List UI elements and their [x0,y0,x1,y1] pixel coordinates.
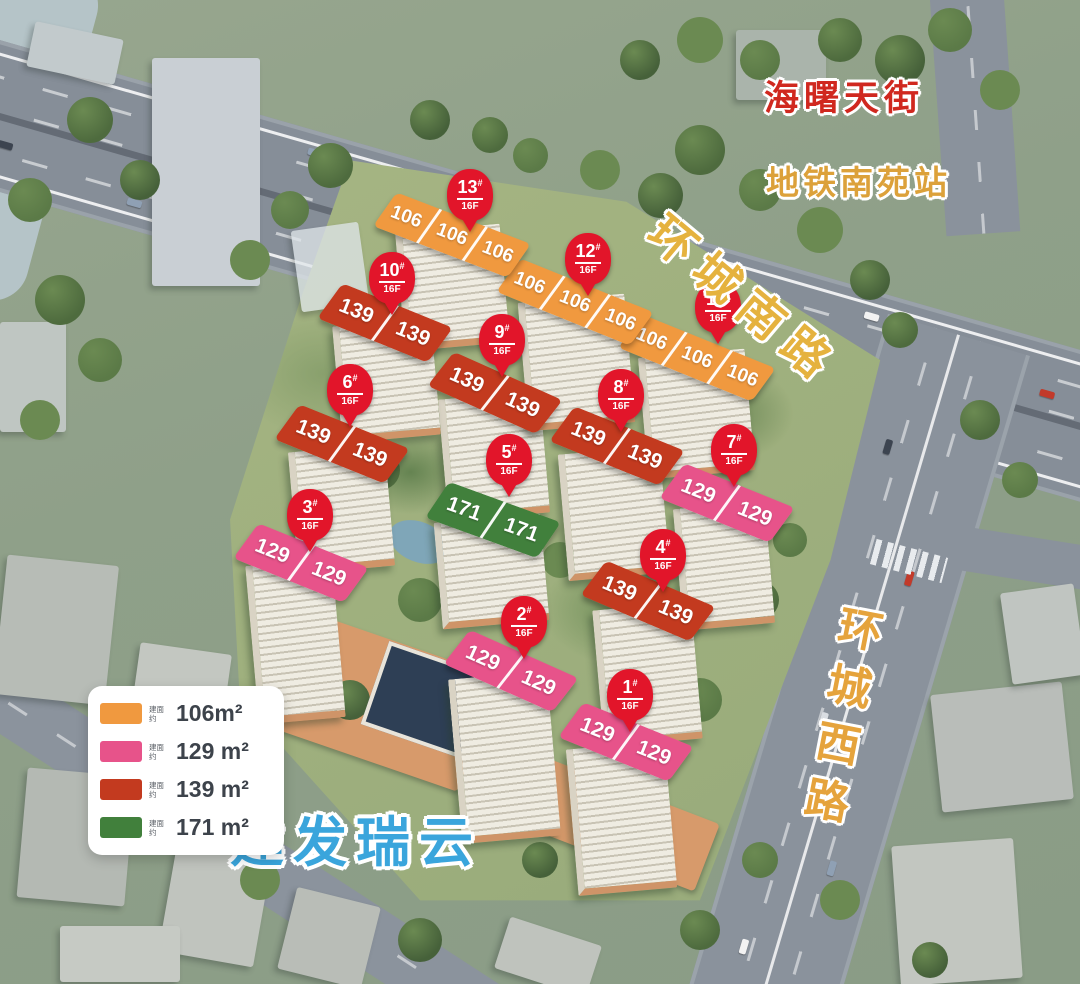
building-floors: 16F [493,347,510,357]
tree [35,275,85,325]
pin-body: 7#16F [711,424,757,476]
tree [742,842,778,878]
building-number: 13# [457,178,482,196]
number-mark: # [666,538,671,548]
pin-divider [489,343,515,345]
tree [67,97,113,143]
legend-area-label: 171 m² [176,814,249,841]
legend-color-swatch [100,741,142,762]
tree [120,160,160,200]
pin-tail [709,329,727,344]
building-floors: 16F [725,457,742,467]
pin-tail [461,217,479,232]
tree [513,138,548,173]
building-number: 9# [494,323,509,341]
area-value: 129 [309,557,350,592]
tree [410,100,450,140]
city-block [1000,583,1080,684]
area-value: 139 [625,440,666,475]
legend-area-label: 106m² [176,700,242,727]
number-mark: # [596,242,601,252]
tree [78,338,122,382]
pin-body: 5#16F [486,434,532,486]
area-value: 171 [501,513,542,548]
building-floors: 16F [500,467,517,477]
number-mark: # [624,378,629,388]
tree [20,400,60,440]
building-number: 5# [501,443,516,461]
tree [522,842,558,878]
pin-tail [621,717,639,732]
pin-divider [617,698,643,700]
pin-body: 8#16F [598,369,644,421]
tree [797,207,843,253]
pin-body: 13#16F [447,169,493,221]
legend-prefix-text: 建面约 [149,781,169,799]
vehicle [1039,389,1055,400]
building-number: 4# [655,538,670,556]
tree [398,918,442,962]
vehicle [863,311,879,322]
building-pin[interactable]: 12#16F [565,233,611,296]
number-mark: # [737,433,742,443]
pin-divider [721,453,747,455]
pin-divider [575,262,601,264]
building-floors: 16F [654,562,671,572]
label-metro-nanyuan-station: 地铁南苑站 [766,156,951,204]
pin-body: 1#16F [607,669,653,721]
area-value: 129 [634,736,675,771]
pin-tail [579,281,597,296]
building-pin[interactable]: 9#16F [479,314,525,377]
pin-divider [379,281,405,283]
building-floors: 16F [621,702,638,712]
number-mark: # [512,443,517,453]
tree [620,40,660,80]
vehicle [826,860,837,876]
pin-body: 9#16F [479,314,525,366]
area-legend: 建面约106m²建面约129 m²建面约139 m²建面约171 m² [88,686,284,855]
building-number: 3# [302,498,317,516]
building-number: 8# [613,378,628,396]
legend-item: 建面约171 m² [100,814,272,841]
tree [818,18,862,62]
building-number: 12# [575,242,600,260]
tree [580,150,620,190]
building-pin[interactable]: 8#16F [598,369,644,432]
city-block [930,681,1074,812]
legend-area-label: 129 m² [176,738,249,765]
number-mark: # [633,678,638,688]
road-branch-east [945,525,1080,592]
building-pin[interactable]: 1#16F [607,669,653,732]
area-value: 106 [724,360,762,392]
area-value: 139 [655,595,697,631]
tree [675,125,725,175]
pin-body: 6#16F [327,364,373,416]
tree [820,880,860,920]
area-value: 106 [678,342,716,374]
pin-divider [511,625,537,627]
pin-body: 2#16F [501,596,547,648]
legend-prefix-text: 建面约 [149,743,169,761]
number-mark: # [353,373,358,383]
tree [928,8,972,52]
tree [980,70,1020,110]
number-mark: # [400,261,405,271]
tree [912,942,948,978]
area-value: 139 [350,438,391,473]
pin-body: 4#16F [640,529,686,581]
pin-divider [457,198,483,200]
area-value: 139 [599,571,641,607]
area-value: 139 [393,317,434,352]
building-pin[interactable]: 4#16F [640,529,686,592]
legend-prefix-text: 建面约 [149,705,169,723]
pin-divider [650,558,676,560]
building-number: 7# [726,433,741,451]
tree [850,260,890,300]
building-floors: 16F [579,266,596,276]
building-floors: 16F [341,397,358,407]
label-haishu-tianjie: 海曙天街 [764,70,924,121]
pin-tail [515,644,533,659]
tree [8,178,52,222]
area-value: 106 [388,201,425,233]
number-mark: # [505,323,510,333]
number-mark: # [527,605,532,615]
legend-color-swatch [100,817,142,838]
building-pin[interactable]: 2#16F [501,596,547,659]
number-mark: # [313,498,318,508]
building-floors: 16F [383,285,400,295]
tree [271,191,309,229]
vehicle [882,439,893,455]
building-floors: 16F [515,629,532,639]
building-number: 10# [379,261,404,279]
tree [472,117,508,153]
area-value: 129 [735,497,776,532]
tree [882,312,918,348]
tree [680,910,720,950]
pin-tail [725,472,743,487]
tree [1002,462,1038,498]
number-mark: # [478,178,483,188]
building-pin[interactable]: 6#16F [327,364,373,427]
building-number: 2# [516,605,531,623]
building-floors: 16F [461,202,478,212]
pin-tail [493,362,511,377]
building-pin[interactable]: 10#16F [369,252,415,315]
building-pin[interactable]: 3#16F [287,489,333,552]
pin-tail [500,482,518,497]
vehicle [738,938,749,954]
pin-body: 3#16F [287,489,333,541]
area-value: 106 [479,237,516,269]
pin-divider [297,518,323,520]
area-value: 171 [444,492,485,527]
legend-color-swatch [100,779,142,800]
pin-divider [608,398,634,400]
site-plan-rendering: 1291291291291291291391391711711391391291… [0,0,1080,984]
area-value: 106 [602,304,640,336]
tree [230,240,270,280]
building-number: 1# [622,678,637,696]
legend-area-label: 139 m² [176,776,249,803]
pin-tail [383,300,401,315]
area-value: 139 [502,387,544,423]
pin-body: 12#16F [565,233,611,285]
building-number: 6# [342,373,357,391]
area-value: 129 [462,641,504,677]
legend-item: 建面约106m² [100,700,272,727]
area-value: 129 [518,665,560,701]
building-pin[interactable]: 13#16F [447,169,493,232]
pin-tail [301,537,319,552]
tree [308,143,353,188]
city-block [494,916,602,984]
city-block [891,838,1022,984]
pin-tail [654,577,672,592]
pin-tail [341,412,359,427]
pin-divider [337,393,363,395]
tree [677,17,723,63]
vehicle [0,140,13,151]
tree [398,578,442,622]
city-block [60,926,180,982]
building-pin[interactable]: 7#16F [711,424,757,487]
pin-body: 10#16F [369,252,415,304]
building-floors: 16F [301,522,318,532]
building-floors: 16F [612,402,629,412]
tree [960,400,1000,440]
pin-tail [612,417,630,432]
legend-prefix-text: 建面约 [149,819,169,837]
area-value: 106 [511,268,549,300]
legend-item: 建面约129 m² [100,738,272,765]
legend-item: 建面约139 m² [100,776,272,803]
pin-divider [496,463,522,465]
city-block [0,555,119,706]
building-pin[interactable]: 5#16F [486,434,532,497]
legend-color-swatch [100,703,142,724]
